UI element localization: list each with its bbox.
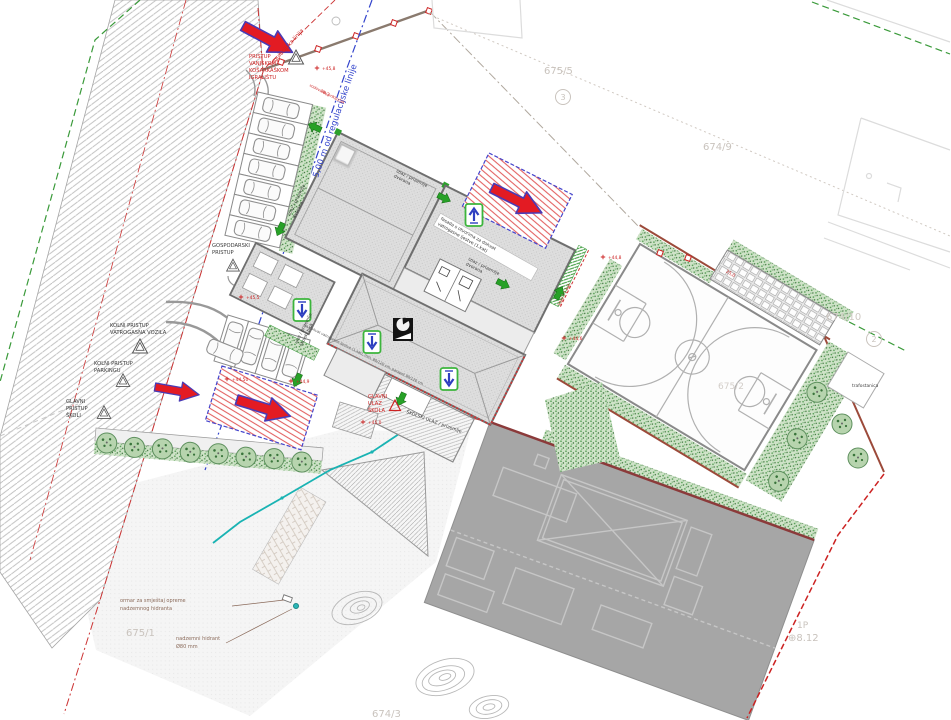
- existing-building: [424, 411, 818, 720]
- hydrant-symbol: [293, 603, 298, 608]
- access-note-line2: VANJSKOM: [249, 61, 276, 67]
- parcel-point-2: 2: [871, 335, 876, 344]
- access-triangle-icon: [227, 259, 240, 271]
- elevation-mark: +45,8: [322, 66, 336, 72]
- access-note-line1: PRISTUP: [249, 54, 271, 60]
- elevation-mark: +44,9: [296, 379, 310, 385]
- access-note-line4: IGRALIŠTU: [249, 74, 276, 81]
- parcel-1p: 1P: [797, 621, 809, 631]
- parcel-675-2: 675/2: [718, 382, 744, 392]
- parcel-674-3: 674/3: [372, 709, 401, 720]
- elevation-mark: +44,8: [608, 255, 622, 261]
- parcel-point-3: 3: [560, 93, 565, 102]
- parcel-675-5: 675/5: [544, 66, 573, 77]
- site-plan-canvas: fasada s otvorima za dohvat vatrogasne l…: [0, 0, 951, 720]
- logo-icon: [393, 318, 413, 341]
- elevation-mark: +45,5: [246, 295, 260, 301]
- glavni-pristup-line2: PRISTUP: [66, 406, 88, 412]
- tree-icon: [832, 414, 852, 434]
- pipe-node: [370, 450, 373, 453]
- evacuation-down-icon: [441, 368, 458, 390]
- pipe-node: [280, 496, 283, 499]
- elevation-mark: +44,50: [232, 377, 248, 383]
- evacuation-up-icon: [466, 204, 483, 226]
- hydrant-line1: nadzemni hidrant: [176, 636, 220, 642]
- kolni-vatrogasni-line2: VATROGASNA VOZILA: [110, 330, 167, 336]
- gospodarski-line2: PRISTUP: [212, 250, 234, 256]
- site-plan-drawing: fasada s otvorima za dohvat vatrogasne l…: [0, 0, 951, 720]
- glavni-ulaz-line1: GLAVNI: [368, 394, 388, 400]
- hydrant-cabinet-line2: nadzemnog hidranta: [120, 606, 172, 612]
- access-note-line3: KOŠARKAŠKOM: [249, 67, 289, 74]
- parcel-675-1: 675/1: [126, 628, 155, 639]
- kolni-parking-line1: KOLNI PRISTUP: [94, 361, 133, 367]
- hydrant-line2: Ø80 mm: [176, 643, 198, 650]
- kolni-parking-line2: PARKINGU: [94, 368, 121, 374]
- glavni-ulaz-line2: ULAZ: [368, 401, 382, 407]
- transformer-label: trafostanica: [852, 383, 879, 389]
- elevation-mark: +45,0: [368, 420, 382, 426]
- glavni-ulaz-line3: ŠKOLA: [368, 407, 386, 414]
- benchmark-label: ⊕8.12: [788, 633, 819, 644]
- parcel-674-10: 674/10: [826, 312, 861, 323]
- tree-icon: [848, 448, 868, 468]
- glavni-pristup-line3: ŠKOLI: [66, 412, 81, 419]
- elevation-mark: +44,6: [569, 336, 583, 342]
- parcel-674-9: 674/9: [703, 142, 732, 153]
- hydrant-cabinet-line1: ormar za smještaj opreme: [120, 597, 186, 604]
- glavni-pristup-line1: GLAVNI: [66, 399, 86, 405]
- kolni-vatrogasni-line1: KOLNI PRISTUP: [110, 323, 149, 329]
- gospodarski-line1: GOSPODARSKI: [212, 243, 250, 249]
- evacuation-down-icon: [364, 331, 381, 353]
